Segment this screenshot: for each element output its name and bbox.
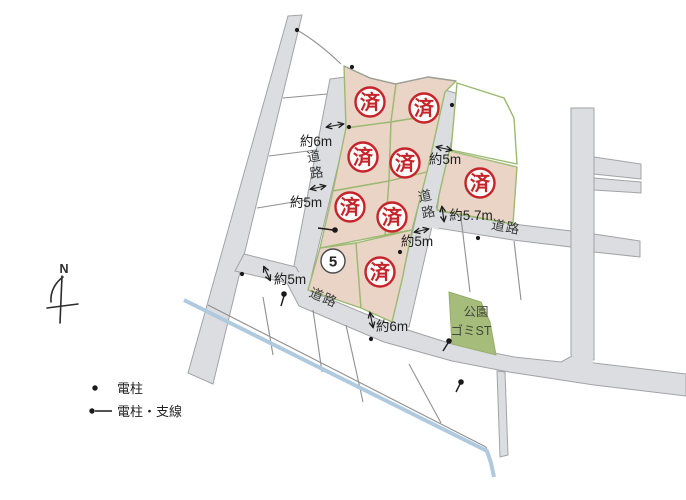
pole-icon — [295, 28, 299, 32]
svg-text:済: 済 — [360, 90, 381, 114]
pole-icon — [347, 125, 351, 129]
sold-stamp-icon: 済 — [366, 258, 395, 287]
sold-stamp-icon: 済 — [466, 169, 495, 198]
road-branch-ne-2 — [594, 178, 641, 193]
legend-item-pole-wire: 電柱・支線 — [89, 404, 182, 419]
legend-label: 電柱 — [117, 381, 143, 396]
measurement-label: 約5m — [274, 272, 306, 287]
pole-icon — [350, 65, 354, 69]
pole-wire-icon — [456, 380, 463, 392]
waterway-line — [184, 300, 494, 477]
north-label: N — [59, 262, 68, 276]
subdivision-plot-map: 済 済 済 済 済 済 済 済 — [0, 0, 686, 500]
sold-stamp-icon: 済 — [356, 88, 385, 117]
svg-text:済: 済 — [470, 171, 491, 195]
sold-stamp-icon: 済 — [378, 203, 407, 232]
pole-icon — [450, 103, 454, 107]
legend: 電柱 電柱・支線 — [89, 381, 182, 419]
measurement-label: 約5m — [401, 234, 433, 249]
sold-stamp-icon: 済 — [336, 193, 365, 222]
measurement-label: 約6m — [300, 134, 332, 149]
measurement-label: 約5m — [429, 152, 461, 167]
compass: N — [47, 262, 78, 323]
pole-icon — [369, 337, 373, 341]
pole-icon — [398, 250, 402, 254]
sold-stamp-icon: 済 — [410, 94, 439, 123]
measurement-label: 約5m — [290, 195, 322, 210]
svg-text:済: 済 — [340, 195, 361, 219]
pole-wire-icon — [89, 408, 94, 413]
road-right-vertical — [571, 108, 594, 360]
svg-text:済: 済 — [414, 96, 435, 120]
north-arrow-icon — [47, 276, 78, 323]
svg-text:5: 5 — [329, 254, 337, 271]
svg-text:済: 済 — [382, 205, 403, 229]
legend-label: 電柱・支線 — [117, 404, 182, 419]
sold-stamp-icon: 済 — [391, 149, 420, 178]
park-label: 公園 — [463, 305, 488, 319]
road-branch-e — [594, 234, 640, 257]
svg-text:済: 済 — [353, 145, 374, 169]
pole-icon — [92, 385, 97, 390]
road-south-stub — [497, 371, 508, 457]
measurement-label: 約5.7m — [449, 208, 493, 223]
measurement-label: 約6m — [376, 319, 408, 334]
svg-text:済: 済 — [395, 151, 416, 175]
legend-item-pole: 電柱 — [92, 381, 143, 396]
garbage-station-label: ゴミST — [451, 323, 492, 338]
pole-wire-icon — [281, 292, 286, 306]
svg-text:済: 済 — [370, 260, 391, 284]
road-branch-ne-1 — [594, 157, 641, 179]
sold-stamp-icon: 済 — [349, 143, 378, 172]
pole-icon — [476, 236, 480, 240]
boundary-curve-top — [297, 30, 341, 64]
pole-icon — [240, 272, 244, 276]
lot-5-number[interactable]: 5 — [321, 249, 345, 273]
site-plan-svg: 済 済 済 済 済 済 済 済 — [0, 0, 686, 500]
